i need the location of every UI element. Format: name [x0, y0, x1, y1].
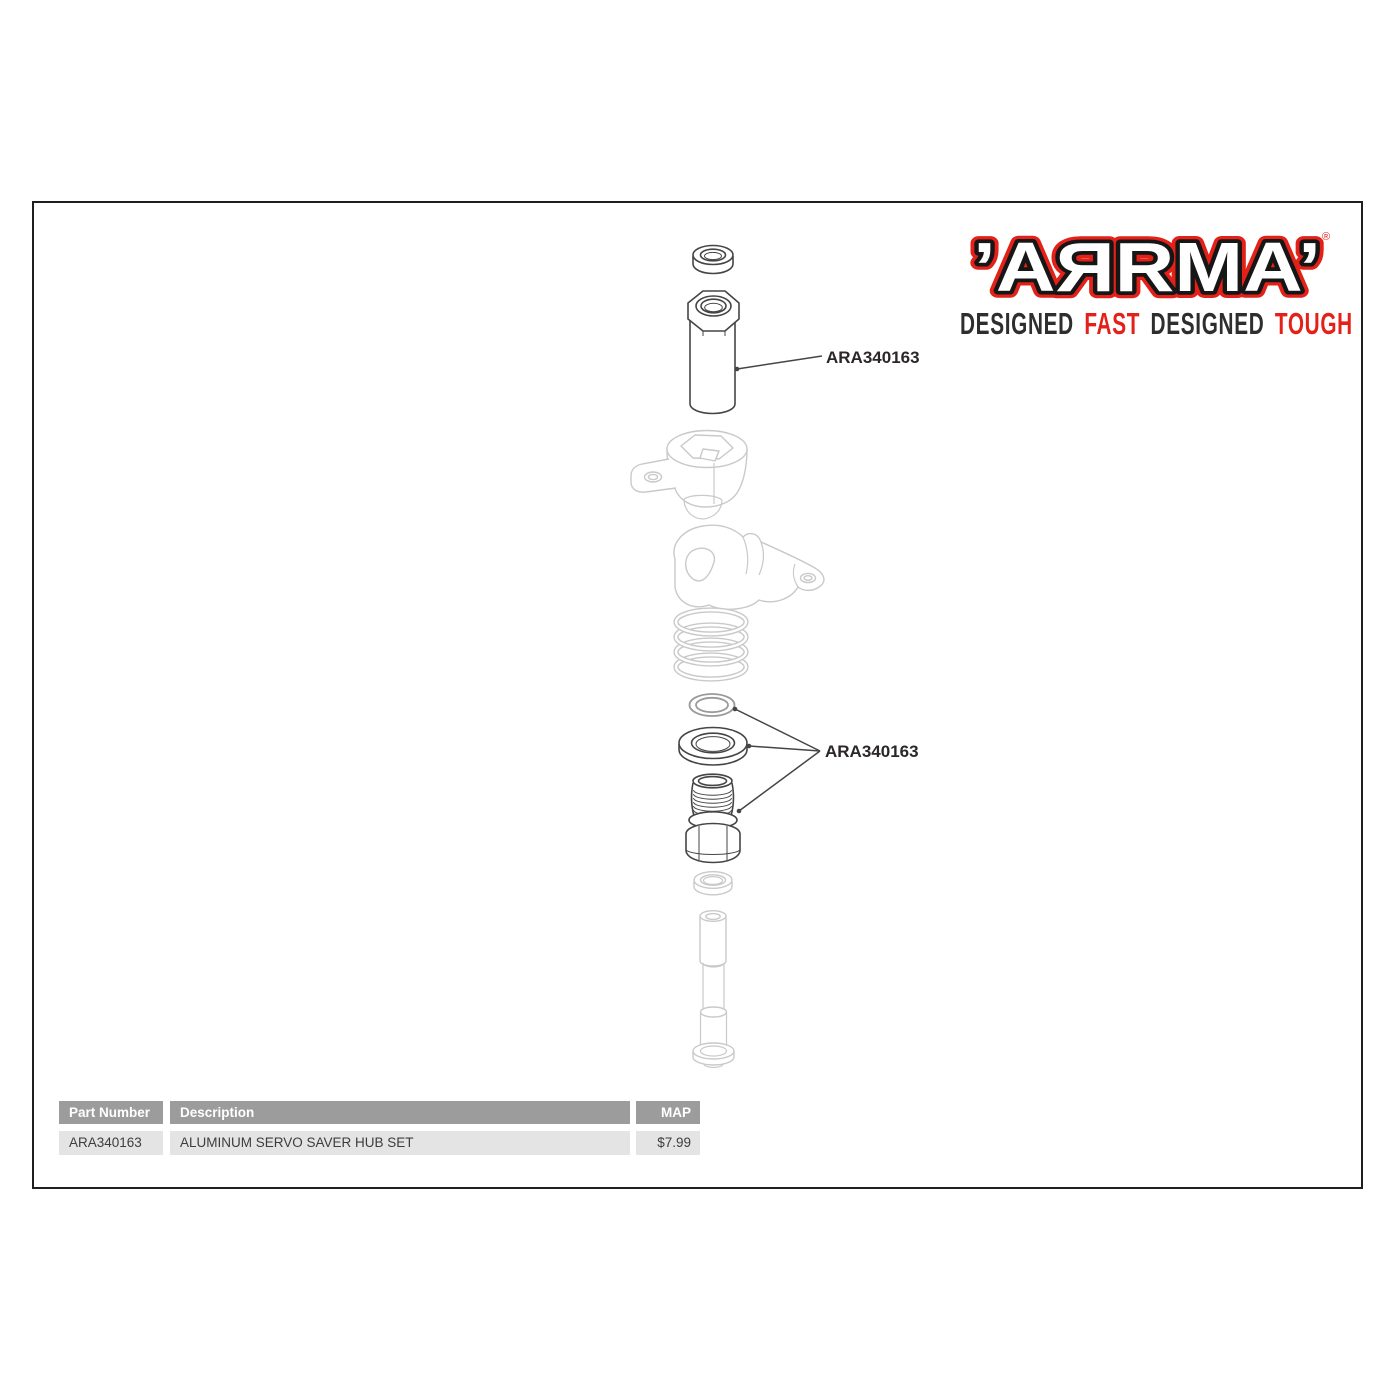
header-part-number: Part Number [59, 1101, 163, 1124]
document-canvas: ’AЯRMA’ ’AЯRMA’ ’AЯRMA’ ® DESIGNED FAST … [0, 0, 1400, 1400]
part-stepped-post [693, 911, 734, 1068]
part-servo-horn [631, 431, 747, 520]
header-description: Description [170, 1101, 630, 1124]
arrma-logo-face: ’AЯRMA’ [973, 228, 1321, 306]
cell-description: ALUMINUM SERVO SAVER HUB SET [170, 1131, 630, 1155]
registered-mark: ® [1322, 231, 1330, 243]
part-servo-arm [674, 525, 824, 609]
tagline-word-designed-2: DESIGNED [1151, 306, 1265, 341]
header-map: MAP [636, 1101, 700, 1124]
table-row: ARA340163 ALUMINUM SERVO SAVER HUB SET $… [59, 1131, 700, 1155]
tagline-word-designed: DESIGNED [960, 306, 1074, 341]
logo-tagline: DESIGNED FAST DESIGNED TOUGH [960, 311, 1353, 336]
price-table: Part Number Description MAP ARA340163 AL… [59, 1101, 700, 1155]
tagline-word-fast: FAST [1084, 306, 1140, 341]
tagline-word-tough: TOUGH [1275, 306, 1353, 341]
cell-part-number: ARA340163 [59, 1131, 163, 1155]
table-header-row: Part Number Description MAP [59, 1101, 700, 1124]
part-threaded-hub [686, 774, 740, 862]
part-spring [676, 610, 746, 679]
part-aluminum-post [688, 291, 739, 414]
arrma-logo: ’AЯRMA’ ’AЯRMA’ ’AЯRMA’ ® [960, 227, 1335, 309]
part-o-ring [690, 694, 735, 716]
part-top-bushing [693, 246, 733, 274]
cell-map-price: $7.99 [636, 1131, 700, 1155]
exploded-diagram: ARA340163 ARA340163 [614, 224, 954, 1094]
callout-label-bottom: ARA340163 [825, 742, 919, 761]
page-border: ’AЯRMA’ ’AЯRMA’ ’AЯRMA’ ® DESIGNED FAST … [32, 201, 1363, 1189]
callout-label-top: ARA340163 [826, 348, 920, 367]
part-small-bushing [694, 872, 732, 895]
part-washer [679, 728, 747, 765]
